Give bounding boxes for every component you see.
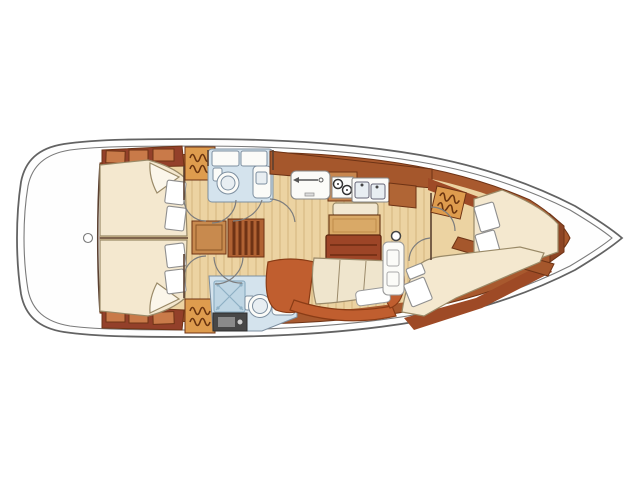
fridge-handle (305, 193, 314, 196)
pillow (165, 243, 187, 268)
toilet-bowl (253, 299, 268, 314)
table-leaf (329, 215, 380, 236)
burner-dot (346, 189, 348, 191)
bathroom-counter (212, 151, 239, 166)
shower-dot (239, 283, 242, 286)
port-bench (333, 203, 378, 216)
engine-box (192, 221, 226, 254)
grate-knob (237, 319, 243, 325)
companionway (192, 219, 264, 257)
aft-cabin-starboard (100, 240, 187, 330)
yacht-floorplan-canvas (0, 0, 640, 480)
pillow (165, 269, 187, 294)
pillow (165, 180, 187, 205)
washbasin-bowl (256, 172, 267, 184)
shower-dot (239, 306, 242, 309)
galley-counter-end (389, 183, 416, 208)
wardrobe-starboard (185, 299, 215, 333)
pillow (165, 206, 187, 231)
faucet-dot (376, 186, 379, 189)
bathroom-counter (241, 151, 267, 166)
toilet-bowl (221, 176, 235, 190)
head-port (208, 149, 273, 202)
aft-cabin-port (100, 146, 187, 236)
shower-dot (216, 306, 219, 309)
faucet-dot (361, 184, 364, 187)
mast-post (392, 232, 401, 241)
stern-fitting (84, 234, 93, 243)
locker-box (153, 149, 174, 161)
locker-box (106, 151, 125, 164)
burner-dot (337, 183, 339, 185)
floor-grate-inner (218, 317, 235, 327)
